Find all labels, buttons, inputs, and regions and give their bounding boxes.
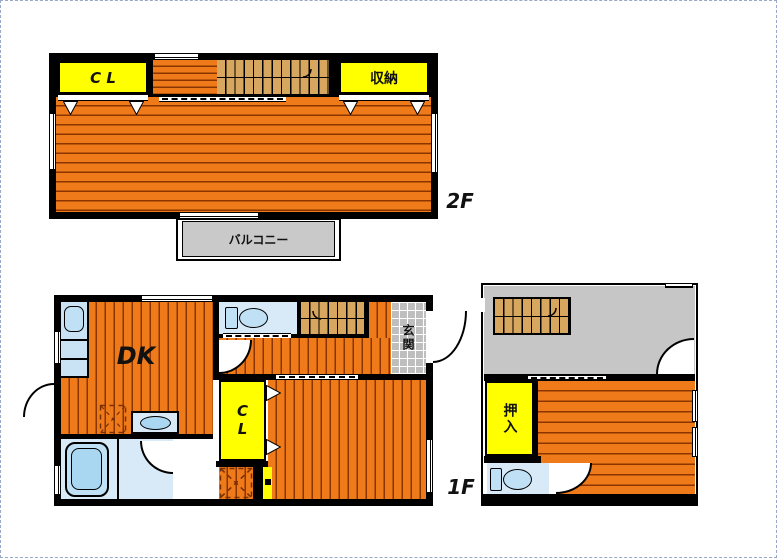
floor2-closet: C L	[58, 61, 148, 94]
floor1-hall-upper	[369, 302, 391, 338]
balcony-label: バルコニー	[229, 231, 289, 248]
stairs-direction-arrow	[301, 65, 321, 79]
floor2-storage-label: 収納	[370, 68, 398, 88]
floor1-kitchen-counter	[61, 302, 89, 378]
floor1-bedroom	[268, 380, 426, 499]
floor1-sink-counter	[131, 411, 179, 434]
balcony: バルコニー	[182, 221, 335, 257]
floor1-closet-label: CL	[236, 403, 250, 438]
storage-door-wedge-icon	[343, 101, 358, 115]
floor1-wall	[253, 467, 263, 499]
water-heater-icon	[265, 479, 271, 485]
sliding-door-dash	[279, 376, 355, 378]
floor2-window-top	[154, 53, 199, 60]
floor2-window-left	[49, 113, 56, 170]
floor-plan-canvas: C L 収納 2F バルコニー DK 玄関 CL	[0, 0, 777, 558]
annex-wall	[484, 456, 541, 463]
floor1-label: 1F	[441, 475, 481, 499]
floor1-water-heater	[263, 467, 272, 499]
floor1-dk-label: DK	[104, 341, 168, 371]
front-door-opening	[426, 311, 433, 363]
sliding-door-dash	[162, 98, 283, 100]
oshiire-label: 押入	[500, 403, 520, 435]
annex-window-right	[692, 427, 698, 457]
bathtub-icon	[65, 442, 109, 497]
annex-toilet-room	[487, 463, 549, 496]
back-door-swing-arc	[23, 383, 54, 417]
floor1-closet: CL	[219, 380, 266, 461]
stairs-direction-arrow	[307, 307, 325, 321]
annex-window-left	[481, 298, 485, 312]
floor2-main-room	[56, 97, 431, 212]
floor2-label: 2F	[439, 189, 481, 213]
floor2-storage-door-track	[339, 94, 429, 101]
floor1-toilet-room	[219, 302, 297, 334]
washbasin-icon	[140, 416, 171, 430]
floor1-window-right	[426, 439, 433, 493]
toilet-tank-icon	[490, 468, 502, 491]
dk-label-text: DK	[117, 342, 156, 370]
sliding-door-dash	[226, 335, 288, 337]
bathtub-inner	[71, 448, 102, 490]
storage-door-wedge-icon	[410, 101, 425, 115]
floor1-label-text: 1F	[447, 475, 475, 499]
annex-oshiire-closet: 押入	[485, 381, 534, 456]
floor1-understair-storage	[219, 467, 253, 499]
sliding-door-dash	[531, 377, 603, 379]
annex-toilet-door-leaf	[549, 463, 556, 494]
floor2-closet-label: C L	[90, 69, 116, 87]
annex-sliding-door	[528, 375, 606, 380]
annex-wall	[534, 381, 538, 456]
floor2-label-text: 2F	[446, 189, 474, 213]
kitchen-sink-icon	[64, 306, 84, 332]
floor2-window-right	[431, 113, 438, 173]
counter-divider	[61, 339, 87, 341]
annex-window-right	[692, 390, 698, 422]
closet-door-wedge-icon	[266, 439, 281, 455]
floor2-stair-landing	[153, 60, 217, 94]
counter-divider	[61, 358, 87, 360]
floor2-storage: 収納	[339, 61, 429, 94]
refrigerator-space-dashed	[99, 404, 127, 434]
annex-window-top	[665, 283, 693, 288]
front-door-swing-arc	[433, 311, 467, 363]
closet-door-wedge-icon	[129, 101, 144, 115]
floor1-bath-window	[54, 465, 61, 495]
closet-door-wedge-icon	[63, 101, 78, 115]
stairs-direction-arrow	[546, 304, 564, 318]
floor2-closet-door-track	[58, 94, 148, 101]
toilet-bowl-icon	[503, 469, 532, 490]
toilet-bowl-icon	[239, 308, 268, 328]
toilet-tank-icon	[225, 307, 238, 329]
floor1-window-top	[141, 295, 213, 302]
floor2-stair-sliding-door	[159, 96, 286, 102]
floor1-window-left	[54, 331, 61, 364]
entrance-label: 玄関	[400, 324, 417, 352]
storage-dash-marks	[219, 467, 253, 499]
floor1-entrance-hall: 玄関	[391, 302, 426, 373]
annex-bottom-wall	[481, 494, 698, 506]
floor1-wall	[117, 439, 119, 499]
closet-door-wedge-icon	[266, 385, 281, 401]
